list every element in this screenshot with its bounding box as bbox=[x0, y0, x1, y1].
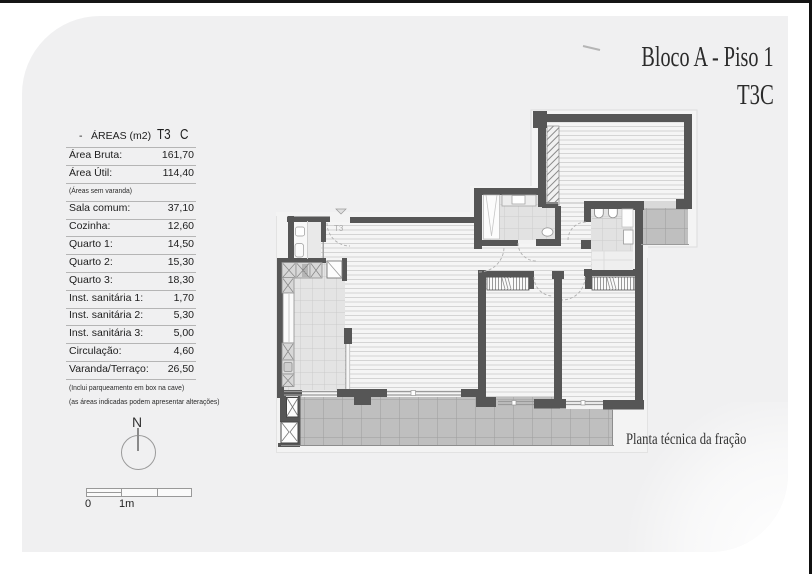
svg-text:T3: T3 bbox=[334, 224, 344, 233]
